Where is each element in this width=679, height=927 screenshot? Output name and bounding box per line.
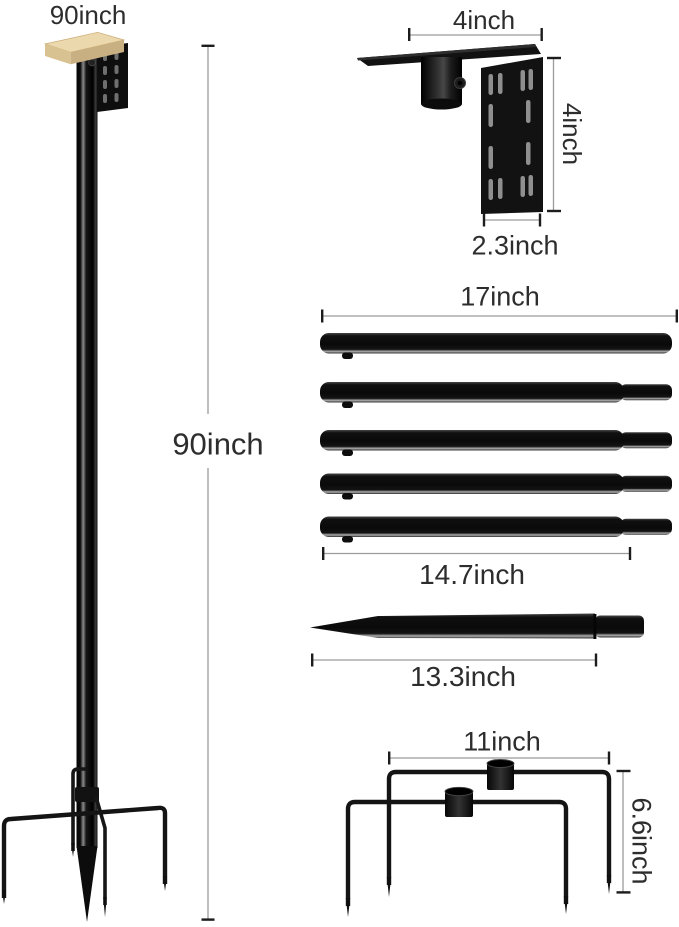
dimension-tick <box>617 891 631 893</box>
dimension-tick <box>617 770 631 772</box>
plate-slot <box>489 146 494 169</box>
plate-slot <box>521 176 526 197</box>
plate-slot <box>489 74 494 95</box>
section-body <box>320 333 672 354</box>
plate-slot <box>115 93 119 102</box>
plate-slot <box>103 66 107 75</box>
prong-tip <box>346 898 350 917</box>
bracket-side-height-label: 4inch <box>559 103 585 165</box>
prong-tip <box>103 897 107 917</box>
bracket-figure <box>357 28 561 227</box>
plate-slot <box>526 100 531 123</box>
assembled-pole-figure <box>2 32 215 922</box>
pole-section <box>320 333 672 359</box>
dimension-tick <box>547 57 561 59</box>
bracket-plate-width-label: 2.3inch <box>471 233 558 260</box>
plate-slot <box>529 175 534 196</box>
plate-slot <box>521 70 526 91</box>
plate-slot <box>103 80 107 89</box>
plate-slot <box>489 179 494 200</box>
base-socket <box>487 760 514 791</box>
plate-slot <box>103 94 107 103</box>
section-body <box>320 430 624 451</box>
pole-section <box>320 382 672 408</box>
plate-slot <box>498 73 503 94</box>
spike-end-cap <box>595 616 644 638</box>
plate-slot <box>529 69 534 90</box>
base-width-label: 11inch <box>463 729 541 756</box>
base-socket <box>445 787 473 817</box>
spike-body <box>310 614 595 639</box>
dimension-tick <box>483 214 485 227</box>
section-body <box>320 517 624 538</box>
section-body <box>320 474 624 495</box>
prong-tip <box>387 877 391 897</box>
section-length-label: 14.7inch <box>419 561 525 589</box>
plate-slot <box>115 65 119 74</box>
base-stake-front <box>348 802 566 906</box>
dimension-tick <box>547 210 561 212</box>
sections-overall-length-label: 17inch <box>460 284 540 311</box>
center-spike <box>77 846 98 922</box>
plate-slot <box>115 79 119 88</box>
dimension-tick <box>321 310 323 323</box>
plate-slot <box>489 104 494 127</box>
section-reduced-end <box>620 432 672 448</box>
pole-section <box>320 430 672 456</box>
dimension-tick <box>388 752 390 765</box>
pole-shaft <box>77 48 98 848</box>
dimension-tick <box>539 214 541 227</box>
section-lock-button <box>342 493 353 500</box>
section-lock-button <box>342 450 353 457</box>
spike-seam <box>593 614 596 639</box>
dimension-tick <box>608 752 610 765</box>
pole-sections-figure <box>320 310 678 561</box>
product-dimension-diagram: 90inch 90inch 4inch 4inch 2.3inch 17inch… <box>0 0 679 927</box>
section-lock-button <box>342 536 353 543</box>
socket-opening <box>445 787 473 795</box>
bracket-bottom-dimension <box>483 214 541 227</box>
dimension-tick <box>311 654 313 667</box>
height-dimension-line <box>202 45 215 921</box>
section-reduced-end <box>620 519 672 535</box>
section-reduced-end <box>620 476 672 492</box>
section-reduced-end <box>620 384 672 400</box>
dimension-tick <box>595 654 597 667</box>
prong-tip <box>607 875 611 894</box>
section-lock-button <box>342 353 353 360</box>
socket-bottom <box>421 99 462 110</box>
prong-tip <box>564 896 568 914</box>
plate-slot <box>498 178 503 199</box>
pole-top-height-label: 90inch <box>50 2 127 28</box>
socket-bolt-center <box>458 81 463 86</box>
pole-set-bolt <box>89 59 96 66</box>
dimension-tick <box>202 918 215 920</box>
plate-slot <box>526 142 531 165</box>
dimension-tick <box>629 547 631 560</box>
pole-section <box>320 517 672 543</box>
dimension-tick <box>541 28 543 41</box>
dimension-tick <box>322 547 324 560</box>
dimension-tick <box>408 28 410 41</box>
pole-height-dimension-label: 90inch <box>172 429 263 460</box>
section-lock-button <box>342 402 353 409</box>
pole-socket <box>421 57 466 110</box>
prong-base-figure <box>346 752 631 918</box>
section-body <box>320 382 624 403</box>
base-height-label: 6.6inch <box>628 797 655 884</box>
pole-section <box>320 474 672 500</box>
dimension-tick <box>202 45 215 47</box>
spike-length-label: 13.3inch <box>410 663 516 691</box>
dimension-tick <box>676 310 678 323</box>
ground-spike-figure <box>310 614 644 667</box>
bracket-top-width-label: 4inch <box>453 7 515 33</box>
socket-opening <box>487 760 514 768</box>
